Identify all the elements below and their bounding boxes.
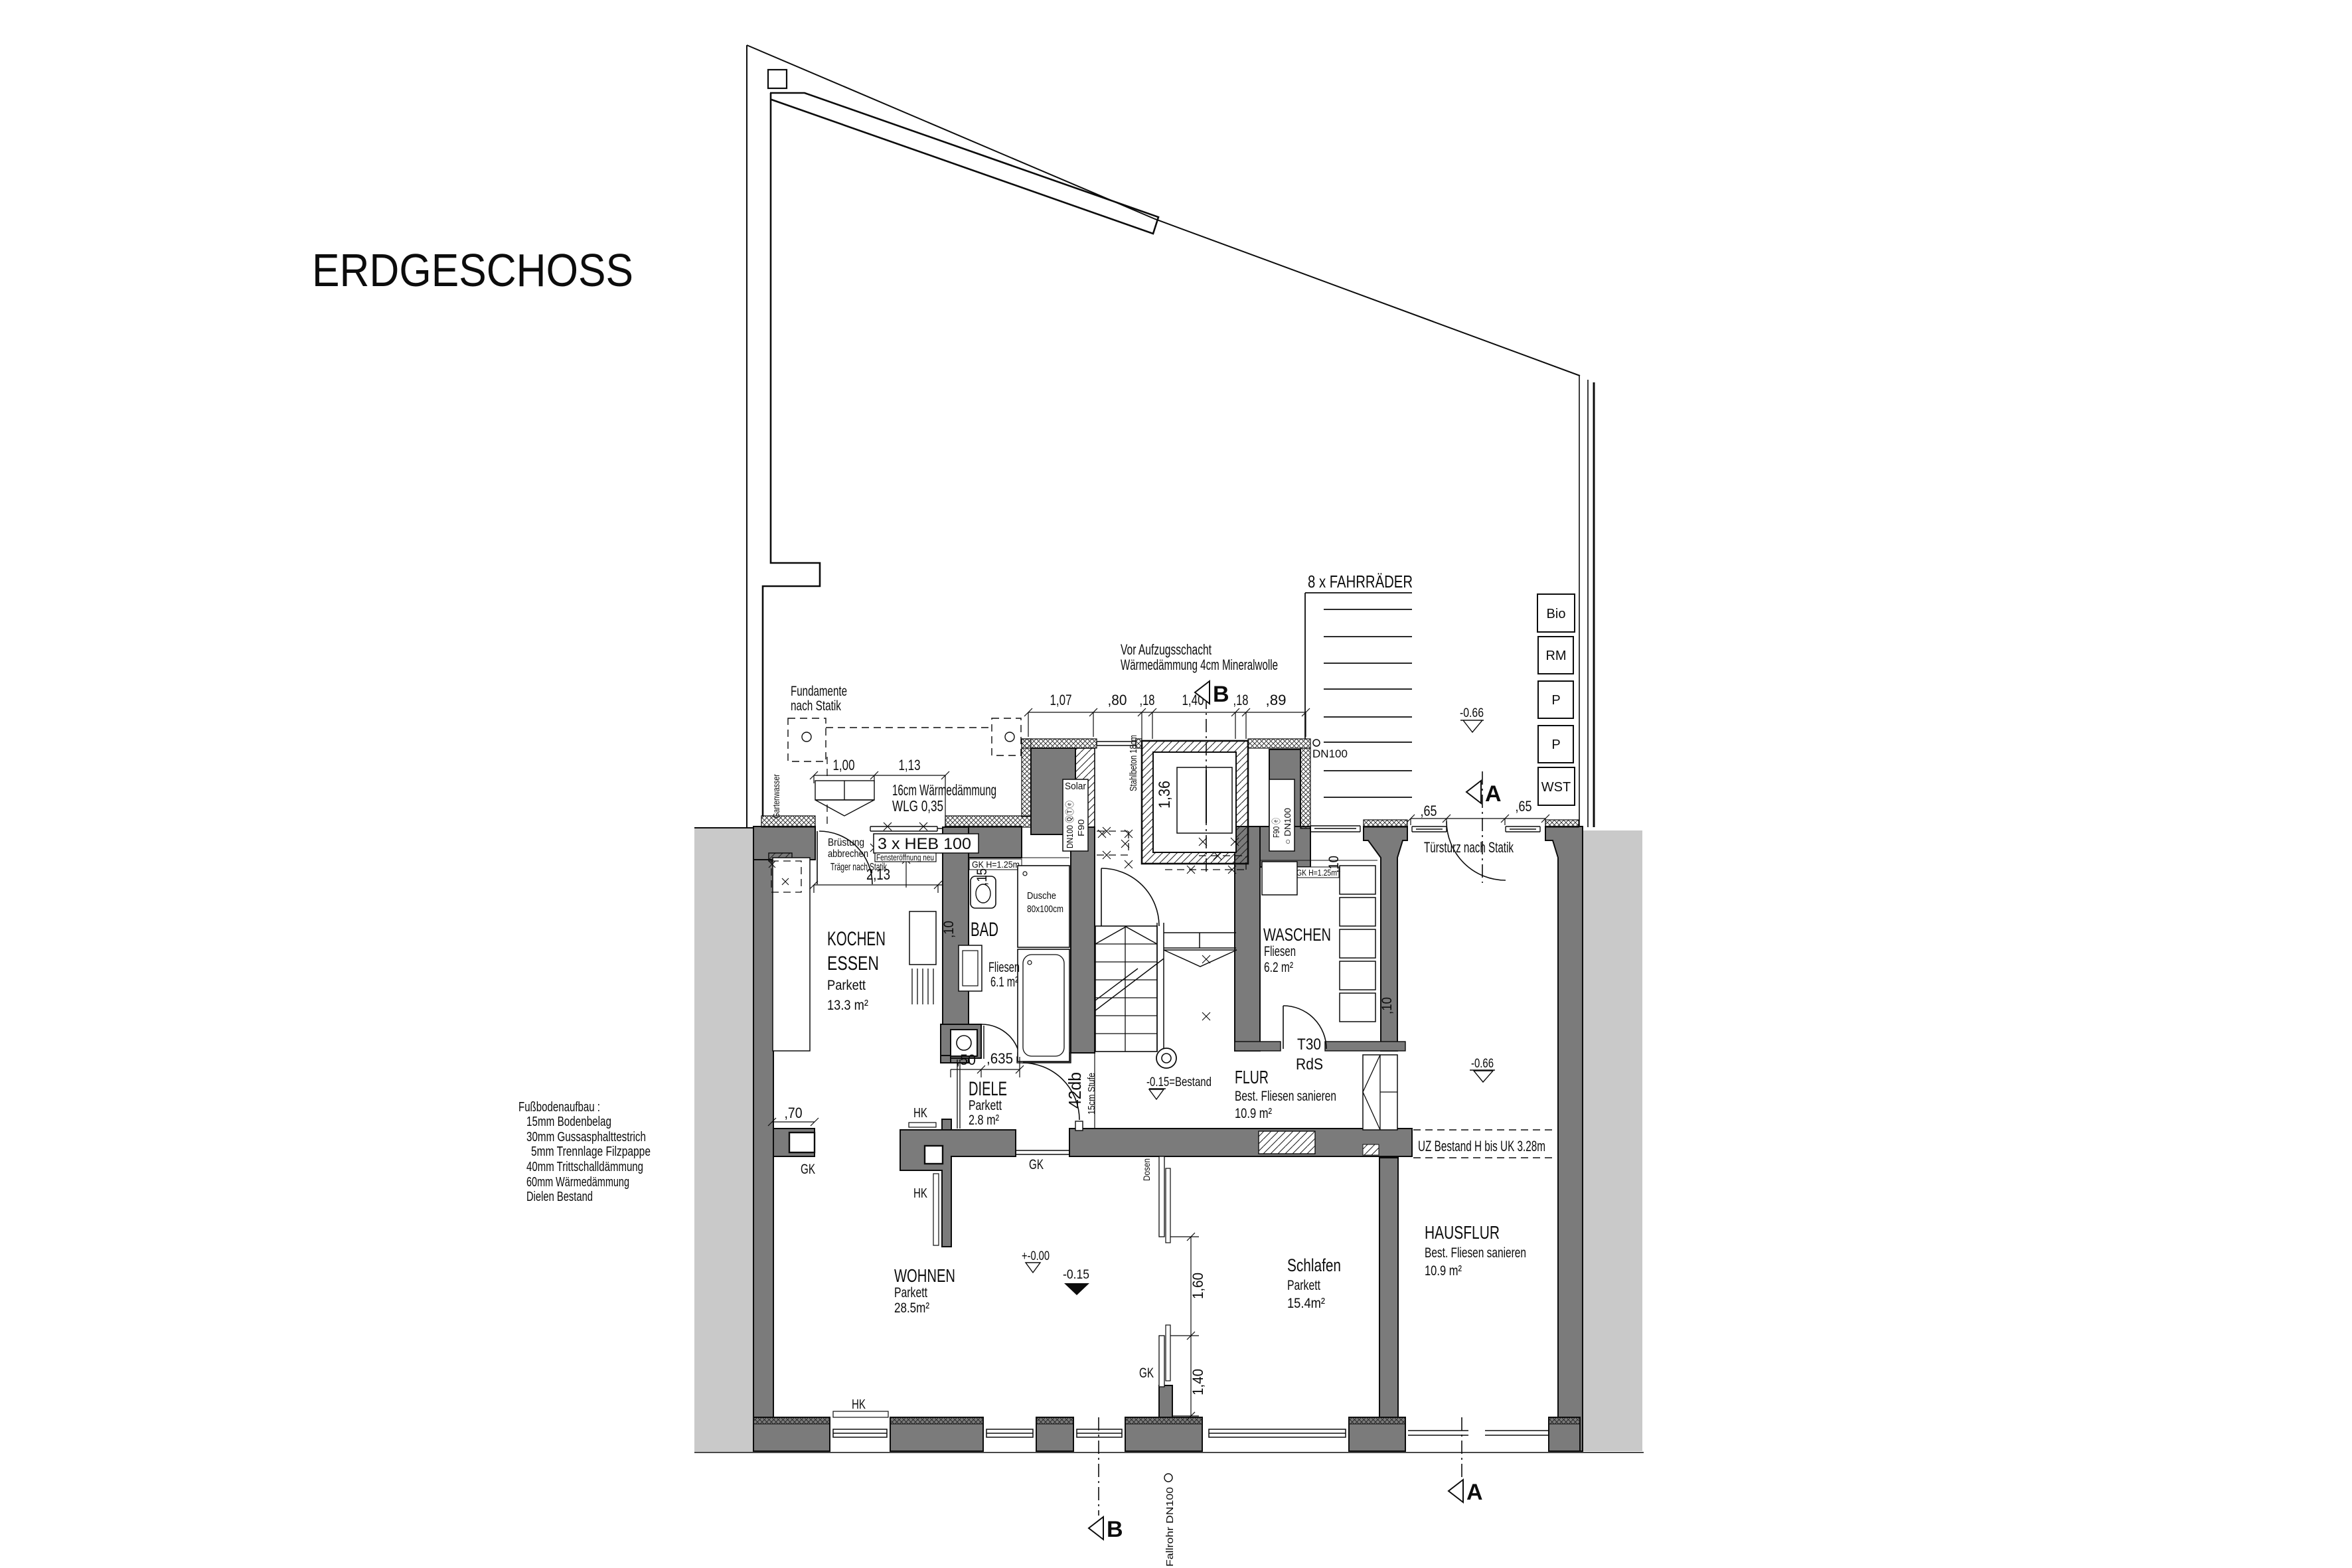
svg-text:10.9 m²: 10.9 m² xyxy=(1235,1106,1272,1121)
svg-text:1,00: 1,00 xyxy=(833,757,855,773)
svg-text:Träger nach Statik: Träger nach Statik xyxy=(830,862,888,873)
svg-text:WST: WST xyxy=(1541,780,1571,795)
svg-text:30mm Gussasphalttestrich: 30mm Gussasphalttestrich xyxy=(526,1130,646,1144)
svg-text:UZ Bestand H bis UK 3.28m: UZ Bestand H bis UK 3.28m xyxy=(1418,1138,1545,1154)
svg-text:Parkett: Parkett xyxy=(1287,1278,1320,1293)
svg-text:○ DN100: ○ DN100 xyxy=(1283,808,1293,844)
svg-text:F90: F90 xyxy=(1076,819,1086,836)
svg-text:6.1 m²: 6.1 m² xyxy=(990,975,1018,990)
svg-text:KOCHEN: KOCHEN xyxy=(827,928,886,950)
svg-text:-0.15=Bestand: -0.15=Bestand xyxy=(1146,1075,1212,1089)
svg-text:Fußbodenaufbau :: Fußbodenaufbau : xyxy=(518,1100,600,1115)
svg-text:DIELE: DIELE xyxy=(969,1078,1007,1100)
svg-text:6.2 m²: 6.2 m² xyxy=(1264,960,1293,975)
svg-text:,15: ,15 xyxy=(975,868,990,886)
svg-text:GK: GK xyxy=(1139,1366,1154,1381)
svg-text:Vor Aufzugsschacht: Vor Aufzugsschacht xyxy=(1121,641,1212,658)
svg-text:10.9 m²: 10.9 m² xyxy=(1425,1263,1462,1279)
svg-text:,18: ,18 xyxy=(1140,692,1155,708)
svg-text:DN100: DN100 xyxy=(1312,747,1348,760)
svg-text:13.3 m²: 13.3 m² xyxy=(827,998,868,1013)
svg-text:1,60: 1,60 xyxy=(1190,1273,1206,1299)
svg-text:RM: RM xyxy=(1545,649,1566,663)
svg-text:Solar: Solar xyxy=(1065,781,1086,792)
svg-text:,635: ,635 xyxy=(986,1050,1013,1067)
svg-text:,10: ,10 xyxy=(1379,997,1395,1014)
svg-text:Parkett: Parkett xyxy=(827,978,866,993)
svg-text:+-0.00: +-0.00 xyxy=(1022,1249,1050,1263)
svg-text:,80: ,80 xyxy=(1108,692,1127,708)
svg-text:A: A xyxy=(1485,781,1502,807)
svg-text:5mm Trennlage Filzpappe: 5mm Trennlage Filzpappe xyxy=(531,1144,651,1159)
svg-text:DN100 ⓆⓉⓔ: DN100 ⓆⓉⓔ xyxy=(1065,801,1075,848)
svg-text:,10: ,10 xyxy=(941,921,957,938)
svg-text:P: P xyxy=(1551,693,1560,708)
svg-text:Best. Fliesen sanieren: Best. Fliesen sanieren xyxy=(1235,1089,1336,1104)
svg-text:15cm Stufe: 15cm Stufe xyxy=(1086,1073,1097,1115)
svg-text:,89: ,89 xyxy=(1266,692,1287,708)
svg-text:,18: ,18 xyxy=(1233,692,1249,708)
svg-text:ERDGESCHOSS: ERDGESCHOSS xyxy=(312,244,633,296)
svg-text:GK H=1.25m: GK H=1.25m xyxy=(972,859,1020,870)
svg-text:42db: 42db xyxy=(1065,1072,1085,1109)
svg-text:Best. Fliesen sanieren: Best. Fliesen sanieren xyxy=(1425,1245,1526,1261)
svg-text:Dosen: Dosen xyxy=(1141,1158,1152,1181)
svg-text:-0.66: -0.66 xyxy=(1471,1057,1494,1071)
svg-text:HK: HK xyxy=(913,1106,927,1121)
svg-text:Dusche: Dusche xyxy=(1027,890,1056,902)
svg-text:Stahlbeton 18cm: Stahlbeton 18cm xyxy=(1128,735,1139,791)
svg-text:15mm Bodenbelag: 15mm Bodenbelag xyxy=(526,1115,611,1129)
svg-text:3 x HEB 100: 3 x HEB 100 xyxy=(878,835,971,853)
svg-text:Gartenwasser: Gartenwasser xyxy=(771,774,781,819)
svg-text:WOHNEN: WOHNEN xyxy=(894,1265,955,1286)
svg-text:F90 ⓔ: F90 ⓔ xyxy=(1271,818,1281,838)
svg-text:Fallrohr DN100: Fallrohr DN100 xyxy=(1164,1487,1176,1567)
svg-text:Türsturz nach Statik: Türsturz nach Statik xyxy=(1424,839,1514,856)
svg-text:nach Statik: nach Statik xyxy=(791,698,841,714)
svg-text:GK: GK xyxy=(1029,1157,1044,1172)
svg-text:-0.66: -0.66 xyxy=(1460,706,1484,720)
svg-text:,65: ,65 xyxy=(1421,803,1437,819)
svg-text:60mm Wärmedämmung: 60mm Wärmedämmung xyxy=(526,1175,629,1190)
svg-text:RdS: RdS xyxy=(1296,1056,1323,1073)
svg-text:2.8 m²: 2.8 m² xyxy=(969,1113,999,1128)
svg-text:,70: ,70 xyxy=(785,1105,803,1121)
svg-text:Fundamente: Fundamente xyxy=(791,684,847,699)
svg-text:abbrechen: abbrechen xyxy=(828,848,868,860)
svg-text:1,40: 1,40 xyxy=(1190,1369,1206,1395)
svg-text:16cm Wärmedämmung: 16cm Wärmedämmung xyxy=(892,781,996,799)
svg-text:-0.15: -0.15 xyxy=(1063,1268,1089,1282)
svg-text:Brüstung: Brüstung xyxy=(828,837,864,848)
svg-text:Parkett: Parkett xyxy=(969,1098,1002,1113)
svg-text:Schlafen: Schlafen xyxy=(1287,1255,1341,1275)
svg-text:FLUR: FLUR xyxy=(1235,1067,1269,1087)
svg-text:Parkett: Parkett xyxy=(894,1285,927,1300)
svg-text:,65: ,65 xyxy=(1516,798,1532,815)
svg-text:P: P xyxy=(1551,738,1560,752)
svg-text:Dielen Bestand: Dielen Bestand xyxy=(526,1190,593,1204)
svg-text:HK: HK xyxy=(913,1186,927,1201)
svg-text:1,36: 1,36 xyxy=(1156,781,1174,809)
svg-text:15.4m²: 15.4m² xyxy=(1287,1296,1325,1311)
svg-text:HAUSFLUR: HAUSFLUR xyxy=(1425,1222,1500,1243)
svg-text:HK: HK xyxy=(852,1397,866,1412)
svg-text:Fensteröffnung neu: Fensteröffnung neu xyxy=(876,852,934,862)
svg-text:Bio: Bio xyxy=(1547,607,1566,621)
svg-text:Fliesen: Fliesen xyxy=(988,960,1020,975)
svg-text:80x100cm: 80x100cm xyxy=(1027,903,1063,915)
svg-text:1,13: 1,13 xyxy=(899,757,921,773)
svg-text:,10: ,10 xyxy=(1326,856,1342,873)
svg-text:BAD: BAD xyxy=(971,919,998,941)
svg-text:Fliesen: Fliesen xyxy=(1264,944,1296,959)
svg-text:WASCHEN: WASCHEN xyxy=(1263,925,1331,945)
svg-text:B: B xyxy=(1107,1517,1123,1542)
svg-text:40mm Trittschalldämmung: 40mm Trittschalldämmung xyxy=(526,1160,643,1174)
svg-text:WLG 0,35: WLG 0,35 xyxy=(892,797,943,815)
svg-text:28.5m²: 28.5m² xyxy=(894,1300,929,1316)
svg-text:1,07: 1,07 xyxy=(1050,692,1072,708)
svg-text:GK: GK xyxy=(801,1162,815,1177)
svg-text:,50: ,50 xyxy=(956,1052,976,1068)
svg-text:B: B xyxy=(1213,682,1229,707)
svg-text:T30: T30 xyxy=(1297,1036,1321,1054)
svg-text:ESSEN: ESSEN xyxy=(827,953,879,975)
svg-text:A: A xyxy=(1466,1480,1483,1505)
svg-text:8 x FAHRRÄDER: 8 x FAHRRÄDER xyxy=(1308,572,1413,591)
svg-text:Wärmedämmung 4cm Mineralwolle: Wärmedämmung 4cm Mineralwolle xyxy=(1121,657,1278,673)
